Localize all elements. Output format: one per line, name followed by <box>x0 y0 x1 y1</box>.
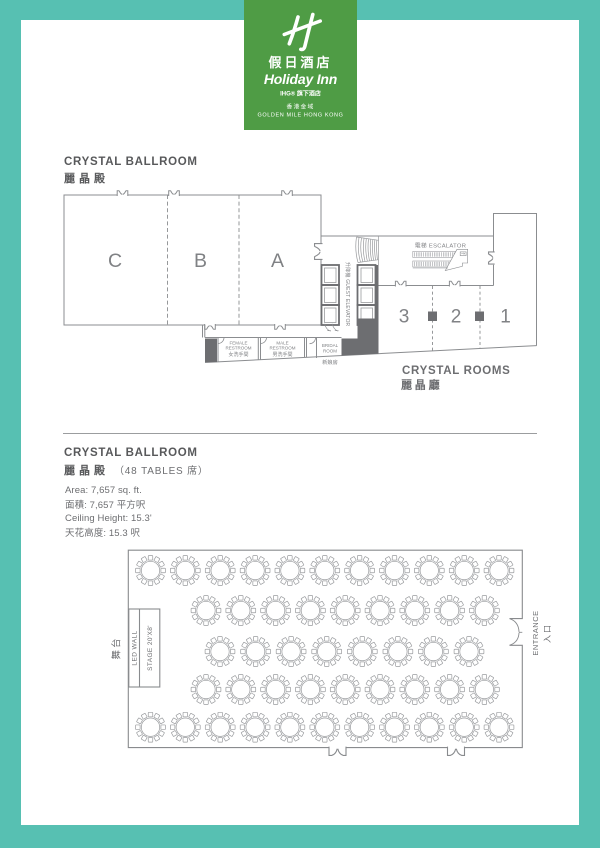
svg-text:2: 2 <box>451 307 462 328</box>
svg-text:LED WALL: LED WALL <box>131 630 138 665</box>
svg-text:BRIDAL: BRIDAL <box>322 343 339 348</box>
svg-text:STAGE 20'X8': STAGE 20'X8' <box>147 625 154 671</box>
svg-text:MALE: MALE <box>276 340 288 345</box>
svg-text:CRYSTAL ROOMS: CRYSTAL ROOMS <box>402 365 511 377</box>
svg-text:男洗手間: 男洗手間 <box>272 351 292 358</box>
svg-text:麗晶廳: 麗晶廳 <box>401 378 442 392</box>
svg-text:1: 1 <box>500 307 511 328</box>
svg-text:入口: 入口 <box>543 623 552 643</box>
svg-text:ROOM: ROOM <box>323 348 337 353</box>
svg-text:IHG® 旗下酒店: IHG® 旗下酒店 <box>280 90 321 98</box>
svg-text:A: A <box>271 250 284 272</box>
svg-text:電梯 ESCALATOR: 電梯 ESCALATOR <box>415 242 466 250</box>
svg-text:ENTRANCE: ENTRANCE <box>531 610 540 655</box>
svg-text:GOLDEN MILE HONG KONG: GOLDEN MILE HONG KONG <box>258 112 344 118</box>
svg-text:香港金域: 香港金域 <box>287 103 315 111</box>
svg-text:假日酒店: 假日酒店 <box>268 55 332 70</box>
svg-text:舞台: 舞台 <box>111 636 123 659</box>
svg-text:3: 3 <box>399 307 410 328</box>
svg-text:FEMALE: FEMALE <box>229 340 247 345</box>
svg-text:RESTROOM: RESTROOM <box>269 346 295 351</box>
svg-text:女洗手間: 女洗手間 <box>228 351 248 358</box>
svg-text:Holiday Inn: Holiday Inn <box>264 71 337 87</box>
svg-text:C: C <box>108 250 122 272</box>
svg-text:B: B <box>194 250 207 272</box>
svg-text:新娘房: 新娘房 <box>322 358 338 366</box>
svg-text:升降機 GUEST ELEVATOR: 升降機 GUEST ELEVATOR <box>344 262 351 327</box>
svg-text:RESTROOM: RESTROOM <box>225 346 251 351</box>
